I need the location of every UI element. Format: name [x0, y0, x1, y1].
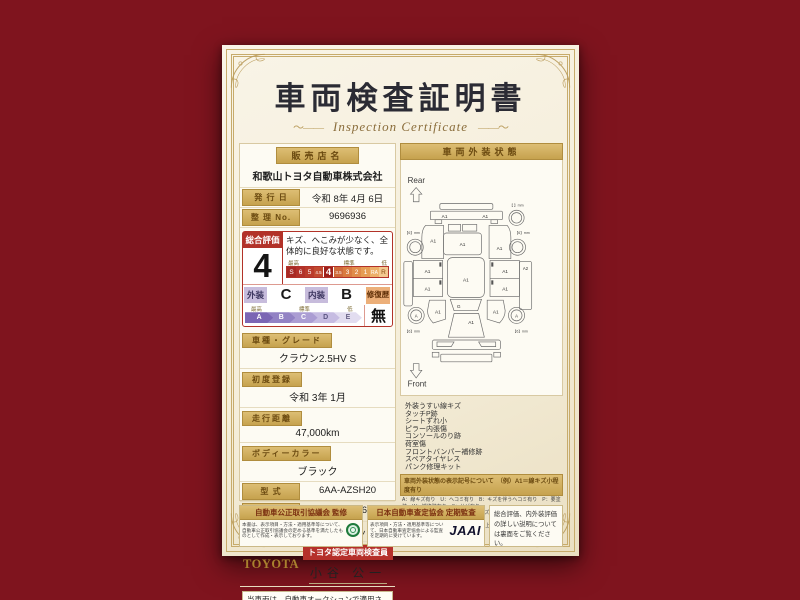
model-code-row: 型 式 6AA-AZSH20: [240, 482, 395, 502]
score-scale-labels: 最高 標準 低: [286, 259, 389, 266]
scale-cell: 6: [296, 267, 305, 277]
overall-score: 4: [243, 248, 282, 284]
panel-mark: A1: [497, 246, 503, 252]
first-registration-row: 初度登録 令和 3年 1月: [240, 369, 395, 408]
mileage-label: 走行距離: [242, 411, 302, 426]
tire-tread-label: 【6】mm: [515, 230, 530, 235]
panel-mark: A2: [523, 266, 529, 271]
certificate-title: 車両検査証明書: [222, 73, 579, 118]
panel-mark: A1: [435, 309, 441, 315]
scale-cell: 4.5: [314, 267, 323, 277]
scale-cell: RA: [370, 267, 379, 277]
model-code-value: 6AA-AZSH20: [300, 482, 395, 501]
exterior-condition-column: 車両外装状態 Rear A1 A1 【 】mm A1: [400, 143, 563, 499]
subtitle-ornament: ——～: [468, 122, 508, 134]
subtitle-ornament: ～——: [293, 122, 333, 134]
panel-mark: A1: [425, 269, 431, 275]
car-diagram-svg: Rear A1 A1 【 】mm A1 【6】mm: [401, 160, 562, 395]
jaai-audit-header: 日本自動車査定協会 定期監査: [368, 506, 484, 520]
model-label: 車種・グレード: [242, 333, 332, 348]
damage-legend-list: 外装うすい線キズ タッチP跡 シートずれ小 ピラー内張傷 コンソールのり跡 荷室…: [400, 396, 563, 471]
dealer-and-vehicle-column: 販売店名 和歌山トヨタ自動車株式会社 発 行 日 令和 8年 4月 6日 整 理…: [239, 143, 396, 501]
tire-tread-label: 【6】mm: [405, 230, 420, 235]
rear-direction-label: Rear: [408, 176, 426, 185]
legend-item: パンク修理キット: [405, 464, 561, 472]
scale-cell: R: [379, 267, 388, 277]
overall-evaluation-box: 総合評価 4 キズ、へこみが少なく、全体的に良好な状態です。 最高 標準 低 S…: [242, 231, 393, 327]
inspector-name: 小谷 公一: [309, 560, 387, 584]
body-color-value: ブラック: [240, 461, 395, 482]
certificate-paper: 車両検査証明書 ～—— Inspection Certificate ——～ 販…: [222, 45, 579, 556]
evaluation-comment-cell: キズ、へこみが少なく、全体的に良好な状態です。 最高 標準 低 S 6 5 4.…: [283, 232, 392, 284]
scale-high-label: 最高: [251, 305, 262, 313]
mileage-value: 47,000km: [240, 426, 395, 443]
panel-mark: G: [457, 304, 461, 310]
disclaimer-text: 当車両は、自動車オークションで適用される車両評価基準に沿い、トヨタユーゼックが認…: [242, 591, 393, 600]
panel-mark: A1: [442, 214, 448, 220]
fair-trade-council-text: 本書は、表示項目・方法・適用基準等について、自動車公正取引協議会の定める基準を満…: [242, 522, 344, 539]
issue-date-value: 令和 8年 4月 6日: [300, 188, 395, 207]
ref-no-label: 整 理 No.: [242, 209, 300, 226]
interior-grade-value: B: [329, 285, 364, 305]
repair-history-label: 修復歴: [366, 287, 390, 304]
scale-low-label: 低: [381, 259, 387, 267]
wheel-mark: A: [515, 313, 518, 318]
issue-date-row: 発 行 日 令和 8年 4月 6日: [240, 188, 395, 208]
ref-no-value: 9696936: [300, 208, 395, 227]
overall-evaluation-label: 総合評価: [243, 232, 282, 248]
legend-item: シートずれ小: [405, 418, 561, 426]
evaluation-bottom: 外装 C 内装 B 修復歴 最高 標準 低 A B: [243, 285, 392, 326]
model-code-label: 型 式: [242, 483, 300, 500]
tire-tread-label: 【6】mm: [513, 328, 528, 333]
panel-mark: A1: [482, 214, 488, 220]
scale-cell: S: [287, 267, 296, 277]
fair-trade-council-box: 自動車公正取引協議会 監修 本書は、表示項目・方法・適用基準等について、自動車公…: [239, 505, 363, 547]
model-row: 車種・グレード クラウン2.5HV S: [240, 330, 395, 369]
ref-no-row: 整 理 No. 9696936: [240, 208, 395, 228]
legend-item: 荷室傷: [405, 441, 561, 449]
jaai-audit-text: 表示項目・方法・適用基準等について、日本自動車査定協会による監査を定期的に受けて…: [370, 522, 447, 539]
scale-cell: 5: [305, 267, 314, 277]
scale-low-label: 低: [347, 305, 353, 313]
fair-trade-seal-icon: [346, 523, 360, 537]
legend-item: コンソールのり跡: [405, 433, 561, 441]
spare-tire-tread-label: 【 】mm: [509, 202, 523, 207]
first-registration-label: 初度登録: [242, 372, 302, 387]
panel-mark: A1: [493, 309, 499, 315]
panel-mark: A1: [460, 242, 466, 248]
scale-mid-label: 標準: [344, 259, 355, 267]
rear-arrow-icon: [410, 188, 421, 202]
evaluation-score-cell: 総合評価 4: [243, 232, 283, 284]
scale-cell: 1: [361, 267, 370, 277]
first-registration-value: 令和 3年 1月: [240, 387, 395, 408]
body-color-label: ボディーカラー: [242, 446, 331, 461]
photo-background: 車両検査証明書 ～—— Inspection Certificate ——～ 販…: [0, 0, 800, 600]
inspector-block: TOYOTA トヨタ認定車両検査員 小谷 公一: [240, 542, 395, 587]
grade-chevrons: A B C D E: [245, 312, 362, 323]
inspector-info: トヨタ認定車両検査員 小谷 公一: [303, 545, 393, 584]
dealer-header-row: 販売店名: [240, 144, 395, 165]
scale-cell-current: 4: [323, 267, 334, 277]
grade-scale-labels: 最高 標準 低: [245, 305, 362, 312]
fair-trade-council-body: 本書は、表示項目・方法・適用基準等について、自動車公正取引協議会の定める基準を満…: [240, 520, 362, 541]
exterior-grade-label: 外装: [244, 287, 267, 303]
evaluation-top: 総合評価 4 キズ、へこみが少なく、全体的に良好な状態です。 最高 標準 低 S…: [243, 232, 392, 285]
wheel-mark: A: [415, 313, 418, 318]
certificate-subtitle: ～—— Inspection Certificate ——～: [222, 119, 579, 135]
mileage-row: 走行距離 47,000km: [240, 408, 395, 443]
evaluation-comment: キズ、へこみが少なく、全体的に良好な状態です。: [286, 235, 389, 259]
scale-cell: 3: [343, 267, 352, 277]
model-value: クラウン2.5HV S: [240, 348, 395, 369]
exterior-grade-value: C: [268, 285, 304, 305]
see-reverse-text: 総合評価、内外装評価の詳しい説明については裏面をご覧ください。: [490, 506, 562, 547]
grade-scale-strip: 最高 標準 低 A B C D E: [243, 305, 364, 326]
scale-cell: 2: [352, 267, 361, 277]
tire-tread-label: 【6】mm: [405, 328, 420, 333]
dealer-name: 和歌山トヨタ自動車株式会社: [240, 165, 395, 188]
jaai-logo: JAAI: [449, 523, 482, 538]
car-damage-diagram: Rear A1 A1 【 】mm A1 【6】mm: [400, 160, 563, 396]
front-arrow-icon: [410, 364, 421, 378]
toyota-logo: TOYOTA: [242, 557, 300, 572]
front-direction-label: Front: [408, 379, 428, 388]
panel-mark: A1: [425, 287, 431, 293]
body-color-row: ボディーカラー ブラック: [240, 443, 395, 482]
inspector-cert-title: トヨタ認定車両検査員: [303, 545, 393, 560]
panel-mark: A1: [463, 277, 469, 283]
scale-mid-label: 標準: [299, 305, 310, 313]
interior-grade-label: 内装: [305, 287, 328, 303]
panel-mark: A1: [430, 238, 436, 244]
legend-item: 外装うすい線キズ: [405, 403, 561, 411]
panel-mark: A1: [502, 269, 508, 275]
issue-date-label: 発 行 日: [242, 189, 300, 206]
subtitle-text: Inspection Certificate: [333, 119, 468, 134]
dealer-header: 販売店名: [276, 147, 358, 164]
certification-footer: 自動車公正取引協議会 監修 本書は、表示項目・方法・適用基準等について、自動車公…: [239, 505, 563, 547]
score-scale: S 6 5 4.5 4 3.5 3 2 1 RA R: [286, 266, 389, 278]
legend-item: スペアタイヤレス: [405, 456, 561, 464]
panel-mark: A1: [502, 287, 508, 293]
repair-history-value: 無: [364, 305, 392, 326]
scale-cell: 3.5: [334, 267, 343, 277]
scale-high-label: 最高: [288, 259, 299, 267]
see-reverse-box: 総合評価、内外装評価の詳しい説明については裏面をご覧ください。: [489, 505, 563, 547]
jaai-audit-body: 表示項目・方法・適用基準等について、日本自動車査定協会による監査を定期的に受けて…: [368, 520, 484, 541]
exterior-condition-header: 車両外装状態: [400, 143, 563, 160]
panel-mark: A1: [468, 320, 474, 326]
fair-trade-council-header: 自動車公正取引協議会 監修: [240, 506, 362, 520]
symbol-explanation-header: 車両外装状態の表示記号について （例）A1＝線キズ小程度有り: [400, 474, 563, 496]
jaai-audit-box: 日本自動車査定協会 定期監査 表示項目・方法・適用基準等について、日本自動車査定…: [367, 505, 485, 547]
